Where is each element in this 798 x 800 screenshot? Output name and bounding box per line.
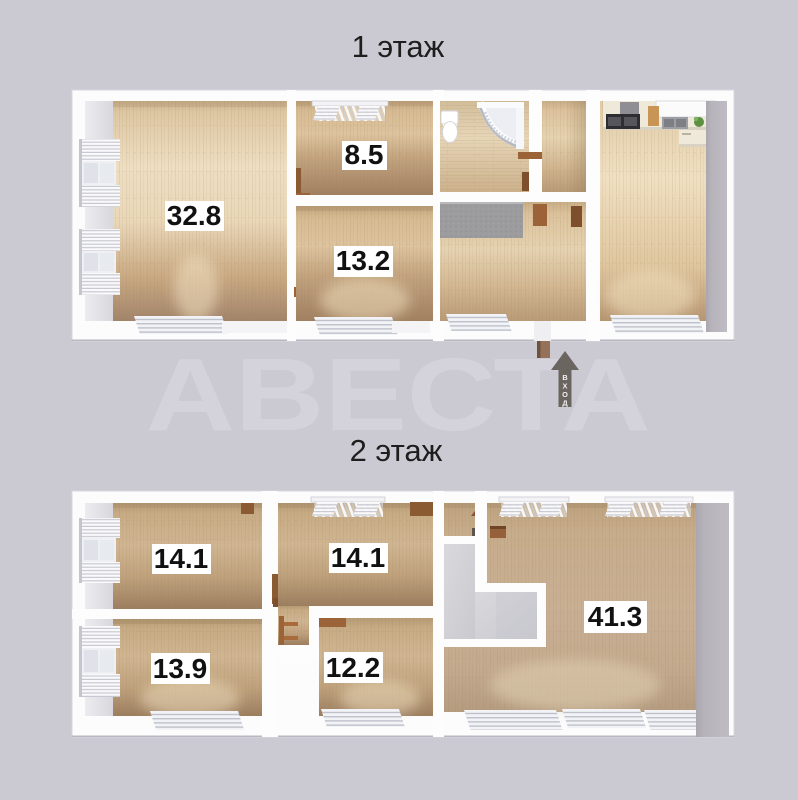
- svg-text:Д: Д: [562, 399, 568, 408]
- svg-text:32.8: 32.8: [167, 200, 222, 231]
- svg-text:14.1: 14.1: [154, 543, 209, 574]
- svg-text:14.1: 14.1: [331, 542, 386, 573]
- svg-text:13.2: 13.2: [336, 245, 391, 276]
- svg-text:8.5: 8.5: [345, 139, 384, 170]
- svg-text:1 этаж: 1 этаж: [352, 29, 445, 64]
- svg-text:2 этаж: 2 этаж: [350, 433, 443, 468]
- svg-text:13.9: 13.9: [153, 653, 208, 684]
- svg-text:41.3: 41.3: [588, 601, 643, 632]
- svg-text:12.2: 12.2: [326, 652, 381, 683]
